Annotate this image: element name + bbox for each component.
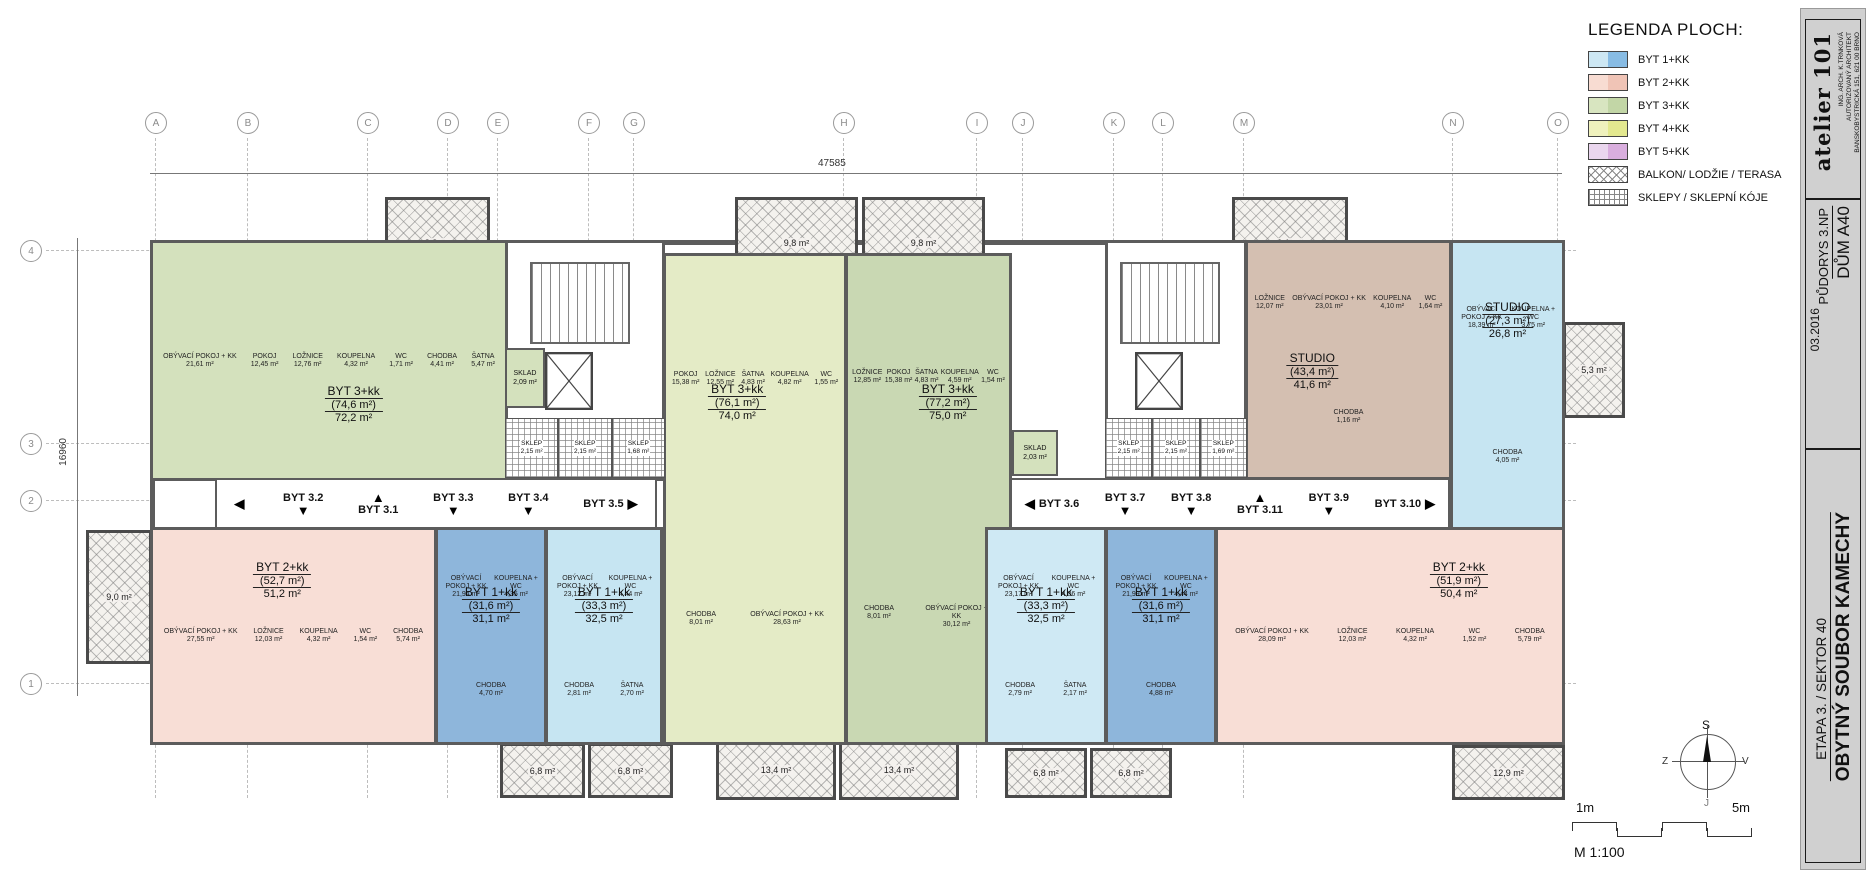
compass-north-label: S: [1702, 718, 1710, 732]
entrance-arrow-icon: ▼: [447, 505, 460, 516]
balcony-area: 13,4 m²: [882, 765, 917, 775]
cellar-box: SKLEP1,69 m²: [1200, 418, 1247, 478]
grid-column-label: K: [1103, 112, 1125, 134]
cellar-boxes: SKLEP2,15 m²SKLEP2,15 m²SKLEP1,69 m²: [1105, 418, 1247, 478]
legend: LEGENDA PLOCH: BYT 1+KK BYT 2+KK BYT 3+K…: [1588, 20, 1796, 209]
room-labels: OBÝVACÍ POKOJ + KK18,39 m²KOUPELNA + WC3…: [1456, 246, 1559, 524]
room-label: LOŽNICE12,03 m²: [1337, 628, 1367, 644]
corridor: ◀BYT 3.2▼BYT 3.1▲BYT 3.3▼BYT 3.4▼BYT 3.5…: [215, 478, 657, 529]
apartment-unit: OBÝVACÍ POKOJ + KK21,94 m²KOUPELNA + WC4…: [435, 527, 547, 745]
entrance-arrow-icon: ▲: [1254, 492, 1267, 503]
room-label: CHODBA8,01 m²: [686, 611, 716, 627]
grid-column-label: J: [1012, 112, 1034, 134]
room-labels: OBÝVACÍ POKOJ + KK21,99 m²KOUPELNA + WC4…: [1111, 533, 1211, 739]
vertical-dimension-value: 16960: [58, 438, 69, 466]
entrance-arrow-icon: ▶: [1425, 498, 1435, 509]
legend-swatch: [1588, 166, 1628, 183]
room-label: WC1,54 m²: [354, 628, 378, 644]
grid-column-label: L: [1152, 112, 1174, 134]
corridor-unit-label: BYT 3.8▼: [1171, 492, 1211, 516]
apartment-label: STUDIO(43,4 m²)41,6 m²: [1287, 351, 1338, 391]
apartment-label: BYT 1+kk(33,3 m²)32,5 m²: [1017, 585, 1075, 625]
vertical-dimension-line: [77, 238, 78, 696]
room-labels: LOŽNICE12,85 m²POKOJ15,38 m²ŠATNA4,83 m²…: [851, 259, 1006, 739]
legend-item: BYT 5+KK: [1588, 140, 1796, 163]
title-block-project: OBYTNÝ SOUBOR KAMECHY ETAPA 3. / SEKTOR …: [1805, 449, 1861, 863]
storage-room: SKLAD2,03 m²: [1012, 430, 1058, 476]
compass-east-label: V: [1742, 756, 1749, 767]
balcony: 13,4 m²: [839, 740, 959, 800]
building-name: DŮM A40: [1832, 206, 1854, 279]
balcony-area: 6,8 m²: [1116, 768, 1146, 778]
room-label: CHODBA5,74 m²: [393, 628, 423, 644]
balcony-area: 12,9 m²: [1491, 768, 1526, 778]
apartment-unit: OBÝVACÍ POKOJ + KK27,55 m²LOŽNICE12,03 m…: [150, 527, 437, 745]
entrance-arrow-icon: ◀: [234, 498, 244, 509]
staircase: [1120, 262, 1220, 344]
firm-logo: atelier 101: [1810, 32, 1835, 171]
corridor-unit-label: ◀: [234, 498, 248, 509]
balcony-area: 9,8 m²: [909, 238, 939, 248]
apartment-unit: OBÝVACÍ POKOJ + KK21,61 m²POKOJ12,45 m²L…: [150, 240, 508, 481]
apartment-unit: POKOJ15,38 m²LOŽNICE12,55 m²ŠATNA4,83 m²…: [663, 253, 847, 745]
legend-title: LEGENDA PLOCH:: [1588, 20, 1796, 40]
corridor-unit-label: BYT 3.3▼: [433, 492, 473, 516]
room-labels: OBÝVACÍ POKOJ + KK21,61 m²POKOJ12,45 m²L…: [156, 246, 502, 475]
architect-name: ING. ARCH. K.TRNKOVÁ: [1838, 32, 1845, 106]
apartment-label: BYT 1+kk(31,6 m²)31,1 m²: [1132, 585, 1190, 625]
legend-swatch: [1588, 120, 1628, 137]
room-label: POKOJ12,45 m²: [251, 353, 279, 369]
entrance-arrow-icon: ▼: [1322, 505, 1335, 516]
cellar-box: SKLEP2,15 m²: [1105, 418, 1152, 478]
apartment-unit: OBÝVACÍ POKOJ + KK23,17 m²KOUPELNA + WC4…: [985, 527, 1107, 745]
apartment-label: BYT 3+kk(74,6 m²)72,2 m²: [325, 384, 383, 424]
entrance-arrow-icon: ▶: [628, 498, 638, 509]
apartment-label: BYT 1+kk(31,6 m²)31,1 m²: [462, 585, 520, 625]
apartment-unit: OBÝVACÍ POKOJ + KK18,39 m²KOUPELNA + WC3…: [1450, 240, 1565, 530]
architect-title: AUTORIZOVANÝ ARCHITEKT: [1846, 32, 1853, 121]
cellar-box: SKLEP1,68 m²: [612, 418, 665, 478]
room-label: OBÝVACÍ POKOJ + KK21,61 m²: [163, 353, 237, 369]
room-label: POKOJ15,38 m²: [885, 369, 913, 385]
room-labels: OBÝVACÍ POKOJ + KK23,12 m²KOUPELNA + WC4…: [551, 533, 657, 739]
balcony: 6,8 m²: [1090, 748, 1172, 798]
room-label: WC1,54 m²: [981, 369, 1005, 385]
room-label: CHODBA4,41 m²: [427, 353, 457, 369]
grid-column-label: H: [833, 112, 855, 134]
balcony: 6,8 m²: [588, 743, 673, 798]
apartment-label: BYT 1+kk(33,3 m²)32,5 m²: [575, 585, 633, 625]
corridor-unit-label: BYT 3.9▼: [1309, 492, 1349, 516]
corridor-unit-label: BYT 3.11▲: [1237, 492, 1283, 516]
corridor-unit-label: BYT 3.1▲: [358, 492, 398, 516]
room-labels: OBÝVACÍ POKOJ + KK28,09 m²LOŽNICE12,03 m…: [1221, 533, 1559, 739]
entrance-arrow-icon: ▼: [522, 505, 535, 516]
apartment-unit: OBÝVACÍ POKOJ + KK21,99 m²KOUPELNA + WC4…: [1105, 527, 1217, 745]
title-block-drawing: DŮM A40 PŮDORYS 3.NP 03.2016: [1805, 199, 1861, 449]
legend-item: BYT 2+KK: [1588, 71, 1796, 94]
staircase: [530, 262, 630, 344]
scale-bar: 1m 5m M 1:100: [1572, 800, 1754, 870]
corridor-unit-label: BYT 3.10▶: [1375, 498, 1435, 510]
title-block-firm: atelier 101 ING. ARCH. K.TRNKOVÁ AUTORIZ…: [1805, 19, 1861, 199]
room-label: CHODBA4,05 m²: [1493, 449, 1523, 465]
entrance-arrow-icon: ◀: [1025, 498, 1035, 509]
room-label: LOŽNICE12,03 m²: [253, 628, 283, 644]
balcony-area: 9,0 m²: [104, 592, 134, 602]
room-label: OBÝVACÍ POKOJ + KK28,09 m²: [1235, 628, 1309, 644]
corridor-unit-label: BYT 3.6◀: [1025, 498, 1079, 510]
room-labels: LOŽNICE12,07 m²OBÝVACÍ POKOJ + KK23,01 m…: [1251, 246, 1446, 474]
apartment-label: BYT 2+kk(52,7 m²)51,2 m²: [253, 560, 311, 600]
room-labels: POKOJ15,38 m²LOŽNICE12,55 m²ŠATNA4,83 m²…: [669, 259, 841, 739]
balcony: 6,8 m²: [1005, 748, 1087, 798]
compass-west-label: Z: [1662, 756, 1668, 767]
firm-address: BANSKOBYSTRICKÁ 151, 621 00 BRNO: [1854, 32, 1861, 153]
grid-column-label: M: [1233, 112, 1255, 134]
balcony-area: 13,4 m²: [759, 765, 794, 775]
grid-column-label: N: [1442, 112, 1464, 134]
room-label: CHODBA2,81 m²: [564, 682, 594, 698]
legend-swatch: [1588, 189, 1628, 206]
scale-text: M 1:100: [1574, 844, 1625, 860]
room-label: CHODBA5,79 m²: [1515, 628, 1545, 644]
grid-column-label: O: [1547, 112, 1569, 134]
project-stage: ETAPA 3. / SEKTOR 40: [1814, 618, 1829, 760]
entrance-arrow-icon: ▲: [372, 492, 385, 503]
grid-row-label: 2: [20, 490, 42, 512]
legend-swatch: [1588, 143, 1628, 160]
legend-swatch: [1588, 74, 1628, 91]
grid-row-label: 4: [20, 240, 42, 262]
room-label: LOŽNICE12,85 m²: [852, 369, 882, 385]
grid-column-label: E: [487, 112, 509, 134]
drawing-name: PŮDORYS 3.NP: [1816, 208, 1831, 305]
balcony: 5,3 m²: [1563, 322, 1625, 418]
drawing-date: 03.2016: [1808, 308, 1822, 351]
apartment-unit: OBÝVACÍ POKOJ + KK28,09 m²LOŽNICE12,03 m…: [1215, 527, 1565, 745]
scale-min-label: 1m: [1576, 800, 1594, 815]
room-label: OBÝVACÍ POKOJ + KK30,12 m²: [920, 605, 993, 629]
entrance-arrow-icon: ▼: [297, 505, 310, 516]
floor-plan-sheet: 47585 16960 8,8 m² 9,8 m² 9,8 m² 9,1 m² …: [0, 0, 1872, 878]
compass-needle-icon: [1703, 736, 1711, 762]
elevator-icon: [545, 352, 593, 410]
balcony-area: 6,8 m²: [616, 766, 646, 776]
grid-column-label: I: [966, 112, 988, 134]
room-label: WC1,64 m²: [1419, 295, 1443, 311]
grid-column-label: F: [578, 112, 600, 134]
cellar-box: SKLEP2,15 m²: [1152, 418, 1199, 478]
legend-item: BALKON/ LODŽIE / TERASA: [1588, 163, 1796, 186]
grid-column-label: G: [623, 112, 645, 134]
scale-max-label: 5m: [1732, 800, 1750, 815]
room-label: CHODBA4,88 m²: [1146, 682, 1176, 698]
apartment-label: BYT 2+kk(51,9 m²)50,4 m²: [1430, 560, 1488, 600]
room-label: KOUPELNA4,32 m²: [1396, 628, 1434, 644]
grid-column-label: A: [145, 112, 167, 134]
balcony-area: 5,3 m²: [1579, 365, 1609, 375]
corridor-unit-label: BYT 3.4▼: [508, 492, 548, 516]
grid-row-label: 3: [20, 433, 42, 455]
entrance-arrow-icon: ▼: [1119, 505, 1132, 516]
apartment-label: BYT 3+kk(76,1 m²)74,0 m²: [708, 382, 766, 422]
project-name: OBYTNÝ SOUBOR KAMECHY: [1830, 512, 1855, 781]
grid-column-label: B: [237, 112, 259, 134]
room-label: CHODBA1,16 m²: [1334, 409, 1364, 425]
legend-swatch: [1588, 97, 1628, 114]
elevator-icon: [1135, 352, 1183, 410]
room-label: KOUPELNA4,82 m²: [771, 371, 809, 387]
balcony: 12,9 m²: [1452, 745, 1565, 800]
apartment-unit: OBÝVACÍ POKOJ + KK23,12 m²KOUPELNA + WC4…: [545, 527, 663, 745]
room-label: KOUPELNA4,10 m²: [1373, 295, 1411, 311]
cellar-boxes: SKLEP2,15 m²SKLEP2,15 m²SKLEP1,68 m²: [505, 418, 665, 478]
title-block: atelier 101 ING. ARCH. K.TRNKOVÁ AUTORIZ…: [1800, 8, 1866, 870]
legend-item: BYT 1+KK: [1588, 48, 1796, 71]
room-label: LOŽNICE12,07 m²: [1255, 295, 1285, 311]
room-label: KOUPELNA4,32 m²: [337, 353, 375, 369]
corridor-unit-label: BYT 3.7▼: [1105, 492, 1145, 516]
grid-column-label: D: [437, 112, 459, 134]
legend-item: BYT 4+KK: [1588, 117, 1796, 140]
balcony-area: 9,8 m²: [782, 238, 812, 248]
entrance-arrow-icon: ▼: [1185, 505, 1198, 516]
legend-item: BYT 3+KK: [1588, 94, 1796, 117]
room-label: OBÝVACÍ POKOJ + KK23,01 m²: [1292, 295, 1366, 311]
legend-item: SKLEPY / SKLEPNÍ KÓJE: [1588, 186, 1796, 209]
room-label: WC1,52 m²: [1463, 628, 1487, 644]
compass-circle: [1680, 734, 1736, 790]
corridor-unit-label: BYT 3.5▶: [583, 498, 637, 510]
balcony-area: 6,8 m²: [528, 766, 558, 776]
storage-room: SKLAD2,09 m²: [505, 348, 545, 408]
room-label: ŠATNA2,70 m²: [620, 682, 644, 698]
cellar-box: SKLEP2,15 m²: [558, 418, 611, 478]
legend-swatch: [1588, 51, 1628, 68]
balcony: 6,8 m²: [500, 743, 585, 798]
room-label: WC1,55 m²: [814, 371, 838, 387]
room-labels: OBÝVACÍ POKOJ + KK21,94 m²KOUPELNA + WC4…: [441, 533, 541, 739]
room-label: CHODBA4,70 m²: [476, 682, 506, 698]
room-label: POKOJ15,38 m²: [672, 371, 700, 387]
horizontal-dimension-value: 47585: [818, 158, 846, 169]
room-label: LOŽNICE12,76 m²: [293, 353, 323, 369]
grid-column-label: C: [357, 112, 379, 134]
room-label: OBÝVACÍ POKOJ + KK28,63 m²: [750, 611, 824, 627]
room-label: ŠATNA5,47 m²: [471, 353, 495, 369]
horizontal-dimension-line: [150, 173, 1562, 174]
room-label: CHODBA2,79 m²: [1005, 682, 1035, 698]
corridor-unit-label: BYT 3.2▼: [283, 492, 323, 516]
balcony: 13,4 m²: [716, 740, 836, 800]
apartment-unit: LOŽNICE12,07 m²OBÝVACÍ POKOJ + KK23,01 m…: [1245, 240, 1452, 480]
cellar-box: SKLEP2,15 m²: [505, 418, 558, 478]
room-labels: OBÝVACÍ POKOJ + KK23,17 m²KOUPELNA + WC4…: [991, 533, 1101, 739]
grid-row-label: 1: [20, 673, 42, 695]
legend-items: BYT 1+KK BYT 2+KK BYT 3+KK BYT 4+KK BYT …: [1588, 48, 1796, 209]
apartment-label: STUDIO(27,3 m²)26,8 m²: [1482, 300, 1533, 340]
balcony: 9,0 m²: [86, 530, 152, 664]
room-label: OBÝVACÍ POKOJ + KK27,55 m²: [164, 628, 238, 644]
apartment-label: BYT 3+kk(77,2 m²)75,0 m²: [919, 382, 977, 422]
room-label: KOUPELNA4,32 m²: [300, 628, 338, 644]
room-label: WC1,71 m²: [389, 353, 413, 369]
room-label: ŠATNA2,17 m²: [1063, 682, 1087, 698]
corridor: BYT 3.6◀BYT 3.7▼BYT 3.8▼BYT 3.11▲BYT 3.9…: [1010, 478, 1450, 529]
scale-bar-segments: [1572, 822, 1752, 836]
room-label: CHODBA8,01 m²: [864, 605, 894, 629]
balcony-area: 6,8 m²: [1031, 768, 1061, 778]
